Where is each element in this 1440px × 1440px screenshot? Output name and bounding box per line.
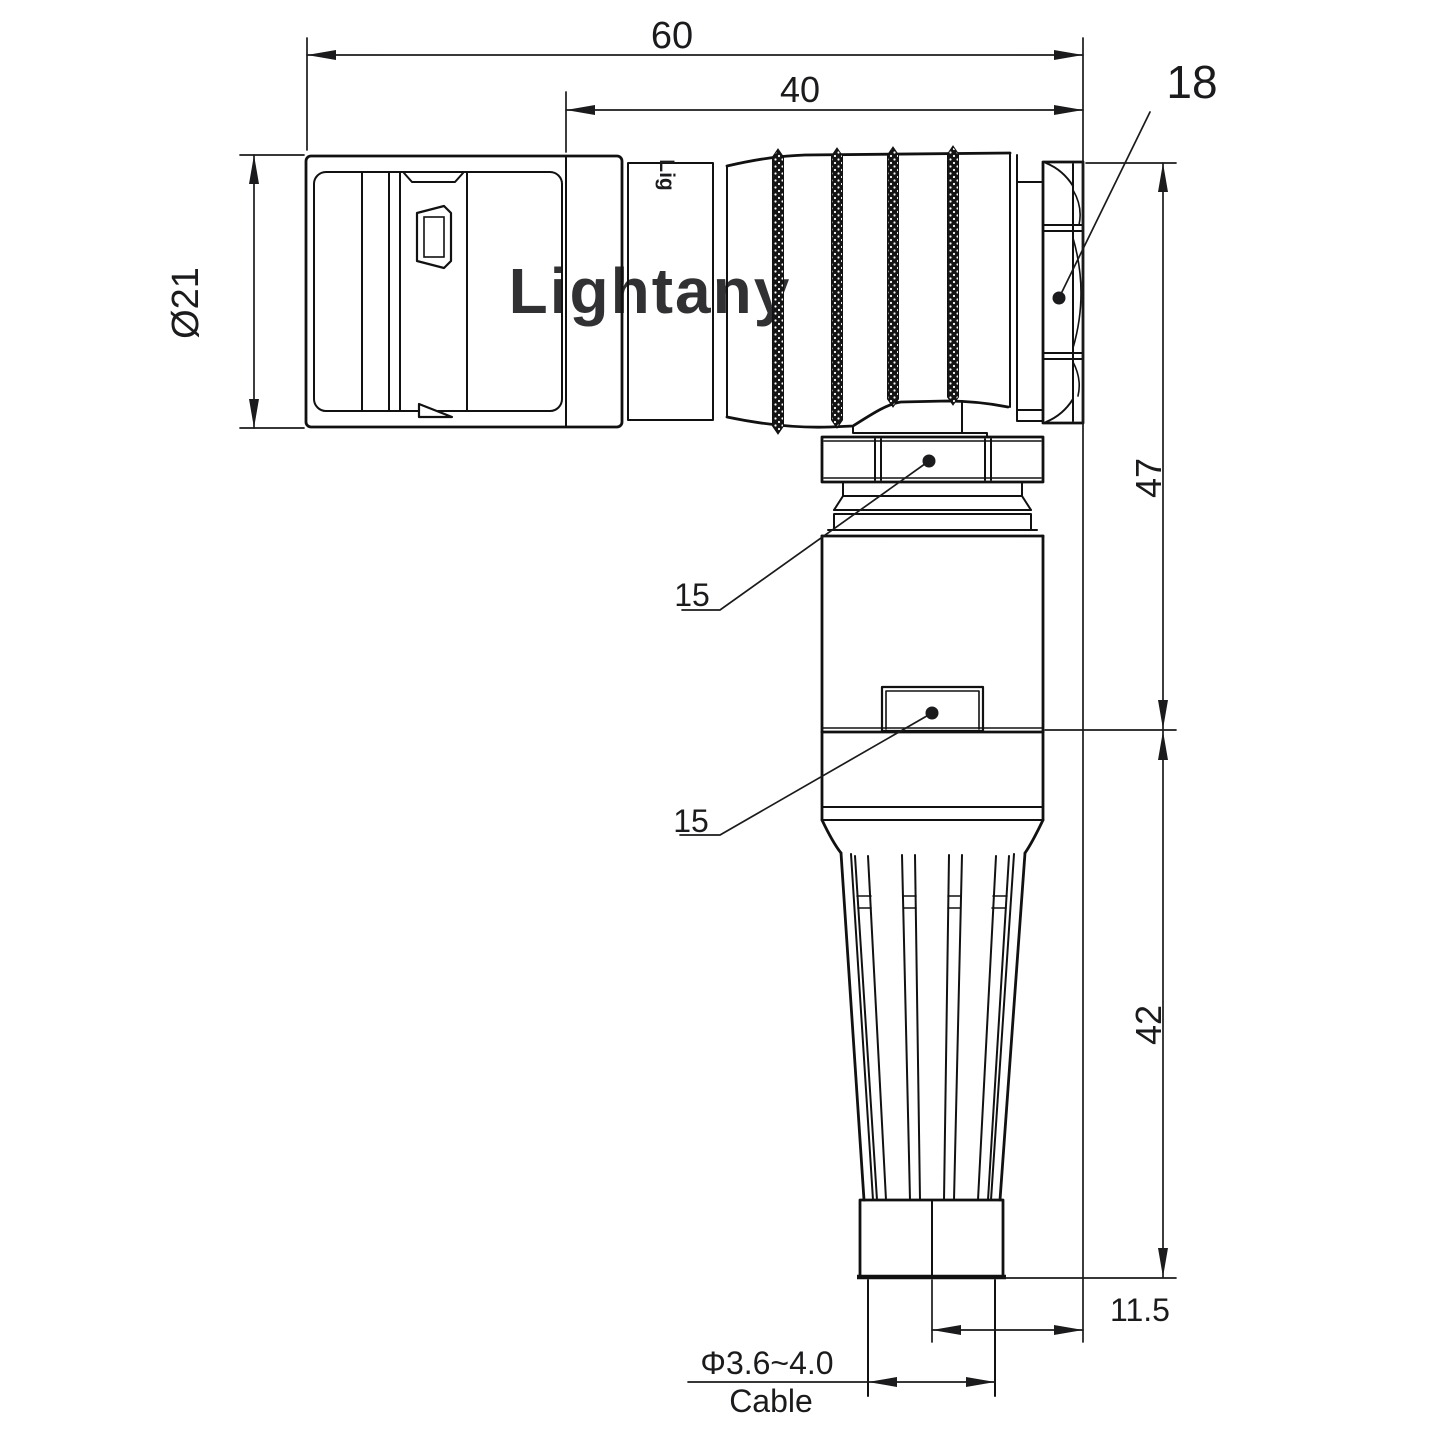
dim-rear-length-label: 40 — [780, 69, 820, 110]
hex-coupling-nut — [1018, 162, 1083, 423]
dim-elbow-height: 47 — [1086, 163, 1176, 729]
leader-body-label: 15 — [673, 803, 709, 839]
dim-cable-offset: 11.5 — [932, 1280, 1170, 1342]
dim-cable-diameter-label: Φ3.6~4.0 — [700, 1345, 833, 1381]
main-body — [822, 536, 1043, 732]
neck-steps — [822, 482, 1043, 536]
dim-cable-offset-label: 11.5 — [1110, 1292, 1170, 1328]
dim-lower-height-label: 42 — [1128, 1005, 1169, 1045]
lower-body — [822, 732, 1043, 853]
strain-relief — [841, 853, 1025, 1200]
leader-collar-nut-label: 15 — [674, 577, 710, 613]
dim-nut-across-flats: 18 — [1053, 56, 1218, 305]
elbow-flange — [853, 426, 987, 437]
drawing-page: Lightany Lig — [0, 0, 1440, 1440]
dim-rear-length: 40 — [566, 69, 1083, 152]
knurled-grip — [727, 146, 1043, 434]
knurl-bands — [773, 146, 959, 434]
dim-overall-length-label: 60 — [651, 15, 693, 57]
part-marking-text: Lig — [655, 159, 678, 191]
dim-lower-height: 42 — [1006, 730, 1176, 1278]
cable-text-label: Cable — [729, 1383, 813, 1419]
shell-top-notch — [404, 173, 463, 182]
shell-keyway — [417, 206, 451, 268]
dim-nut-label: 18 — [1166, 56, 1217, 108]
connector-technical-drawing: Lightany Lig — [0, 0, 1440, 1440]
dim-cable-diameter: Φ3.6~4.0 Cable — [688, 1345, 995, 1419]
dim-elbow-height-label: 47 — [1128, 458, 1169, 498]
end-cap — [857, 1200, 1006, 1277]
dim-front-diameter: Ø21 — [165, 155, 304, 428]
dim-diameter-label: Ø21 — [165, 267, 207, 339]
watermark-text: Lightany — [509, 255, 792, 327]
